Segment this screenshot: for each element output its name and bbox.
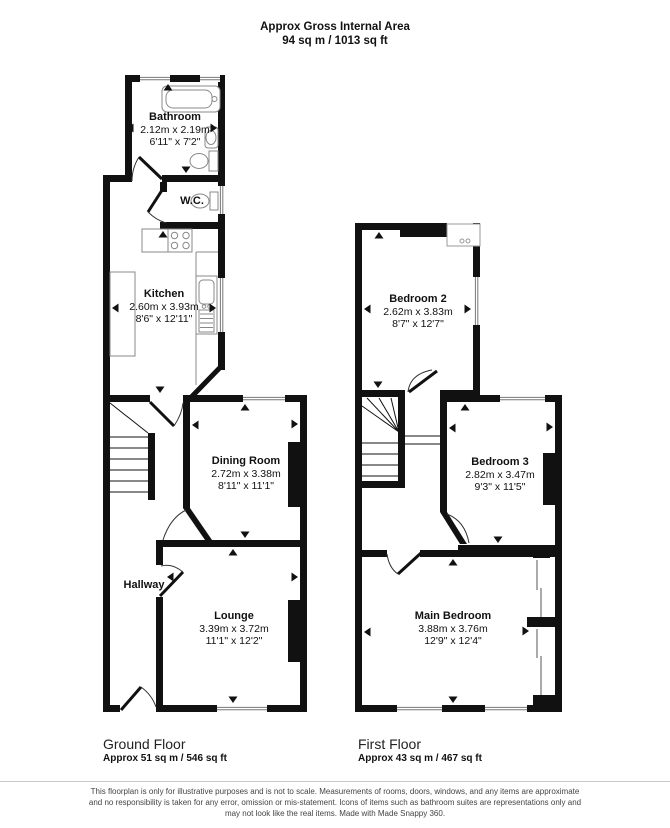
room-label-bedroom2: Bedroom 2 2.62m x 3.83m 8'7" x 12'7" <box>358 293 478 330</box>
room-imperial: 12'9" x 12'4" <box>393 635 513 647</box>
room-metric: 2.12m x 2.19m <box>115 124 235 136</box>
room-imperial: 8'11" x 11'1" <box>186 480 306 492</box>
measure-arrow-down <box>449 697 458 704</box>
ground-stairs <box>110 403 148 492</box>
closet-bottom-stub <box>533 695 555 705</box>
bathroom-door-arc <box>132 157 139 181</box>
measure-arrow-down <box>156 387 165 394</box>
disclaimer-divider <box>0 781 670 782</box>
disclaimer: This floorplan is only for illustrative … <box>0 786 670 819</box>
room-name: Dining Room <box>186 455 306 468</box>
room-metric: 2.62m x 3.83m <box>358 306 478 318</box>
room-imperial: 8'7" x 12'7" <box>358 318 478 330</box>
room-label-bedroom3: Bedroom 3 2.82m x 3.47m 9'3" x 11'5" <box>440 456 560 493</box>
room-imperial: 8'6" x 12'11" <box>104 313 224 325</box>
measure-arrow-down <box>182 167 191 174</box>
dining-door-arc <box>163 510 186 540</box>
measure-arrow-right <box>292 420 299 429</box>
bedroom2-wardrobe-block <box>400 223 447 237</box>
room-label-bathroom: Bathroom 2.12m x 2.19m 6'11" x 7'2" <box>115 111 235 148</box>
measure-arrow-up <box>229 549 238 556</box>
measure-arrow-down <box>241 532 250 539</box>
front-door-arc <box>141 687 156 707</box>
measure-arrow-left <box>449 424 456 433</box>
room-name: Bedroom 2 <box>358 293 478 306</box>
room-name: Bathroom <box>115 111 235 124</box>
kitchen-door-leaf <box>150 402 174 426</box>
wc-door-arc <box>148 212 166 223</box>
measure-arrow-up <box>449 559 458 566</box>
front-door-leaf <box>121 687 141 710</box>
room-label-main-bedroom: Main Bedroom 3.88m x 3.76m 12'9" x 12'4" <box>393 610 513 647</box>
landing-steps <box>405 436 440 444</box>
room-imperial: 11'1" x 12'2" <box>174 635 294 647</box>
room-metric: 3.39m x 3.72m <box>174 623 294 635</box>
closet-divider <box>527 617 562 627</box>
floorplan-canvas: Approx Gross Internal Area 94 sq m / 101… <box>0 0 670 828</box>
measure-arrow-down <box>374 382 383 389</box>
measure-arrow-left <box>364 628 371 637</box>
room-name: W.C. <box>162 195 222 208</box>
disclaimer-line3: may not look like the real items. Made w… <box>0 808 670 819</box>
room-name: Main Bedroom <box>393 610 513 623</box>
room-name: Kitchen <box>104 288 224 301</box>
main-bedroom-door-arc <box>387 554 398 574</box>
kitchen-counter <box>142 229 168 252</box>
room-imperial: 9'3" x 11'5" <box>440 481 560 493</box>
disclaimer-line1: This floorplan is only for illustrative … <box>0 786 670 797</box>
closet-sliding-doors <box>537 560 541 695</box>
room-metric: 2.72m x 3.38m <box>186 468 306 480</box>
kitchen-door-arc <box>174 403 183 426</box>
room-label-lounge: Lounge 3.39m x 3.72m 11'1" x 12'2" <box>174 610 294 647</box>
measure-arrow-up <box>461 404 470 411</box>
room-name: Lounge <box>174 610 294 623</box>
measure-arrow-right <box>547 423 554 432</box>
room-name: Bedroom 3 <box>440 456 560 469</box>
stove-icon <box>168 229 192 252</box>
room-label-kitchen: Kitchen 2.60m x 3.93m 8'6" x 12'11" <box>104 288 224 325</box>
room-metric: 2.82m x 3.47m <box>440 469 560 481</box>
disclaimer-line2: and no responsibility is taken for any e… <box>0 797 670 808</box>
room-imperial: 6'11" x 7'2" <box>115 136 235 148</box>
ground-floor-area: Approx 51 sq m / 546 sq ft <box>103 753 227 764</box>
lounge-door-arc <box>161 565 183 572</box>
measure-arrow-left <box>192 421 199 430</box>
measure-arrow-right <box>292 573 299 582</box>
bathroom-toilet-icon <box>209 151 218 171</box>
main-bedroom-door-leaf <box>398 553 421 574</box>
measure-arrow-up <box>375 232 384 239</box>
ground-floor-title: Ground Floor <box>103 736 185 752</box>
measure-arrow-down <box>229 697 238 704</box>
plan-graphics <box>0 0 670 828</box>
measure-arrow-right <box>523 627 530 636</box>
room-label-dining-room: Dining Room 2.72m x 3.38m 8'11" x 11'1" <box>186 455 306 492</box>
closet-top-stub <box>533 550 550 558</box>
measure-arrow-down <box>494 537 503 544</box>
bathroom-door-leaf <box>139 157 162 179</box>
bedroom2-door-leaf <box>409 371 437 392</box>
room-label-hallway: Hallway <box>104 579 184 592</box>
measure-arrow-up <box>241 404 250 411</box>
first-floor-title: First Floor <box>358 736 421 752</box>
room-name: Hallway <box>104 579 184 592</box>
room-metric: 2.60m x 3.93m <box>104 301 224 313</box>
room-label-wc: W.C. <box>162 195 222 208</box>
first-floor-area: Approx 43 sq m / 467 sq ft <box>358 753 482 764</box>
room-metric: 3.88m x 3.76m <box>393 623 513 635</box>
